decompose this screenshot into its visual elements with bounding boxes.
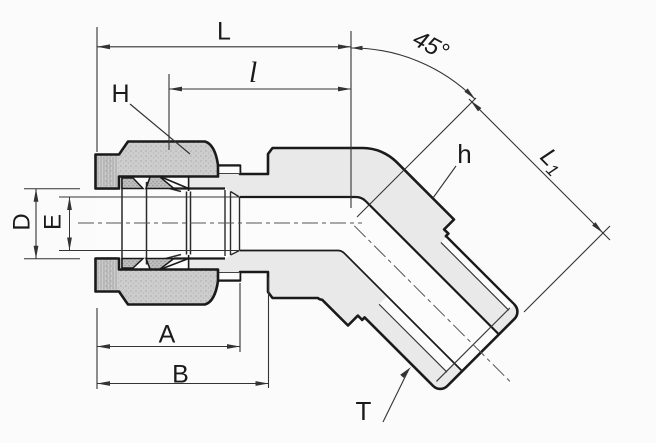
svg-text:B: B <box>172 361 189 389</box>
svg-text:H: H <box>111 80 129 108</box>
svg-text:L: L <box>217 18 231 46</box>
svg-text:T: T <box>356 396 372 426</box>
svg-text:l: l <box>249 56 257 89</box>
svg-text:A: A <box>159 321 176 349</box>
svg-text:D: D <box>9 213 36 230</box>
svg-text:h: h <box>457 139 471 169</box>
svg-text:E: E <box>40 214 67 230</box>
